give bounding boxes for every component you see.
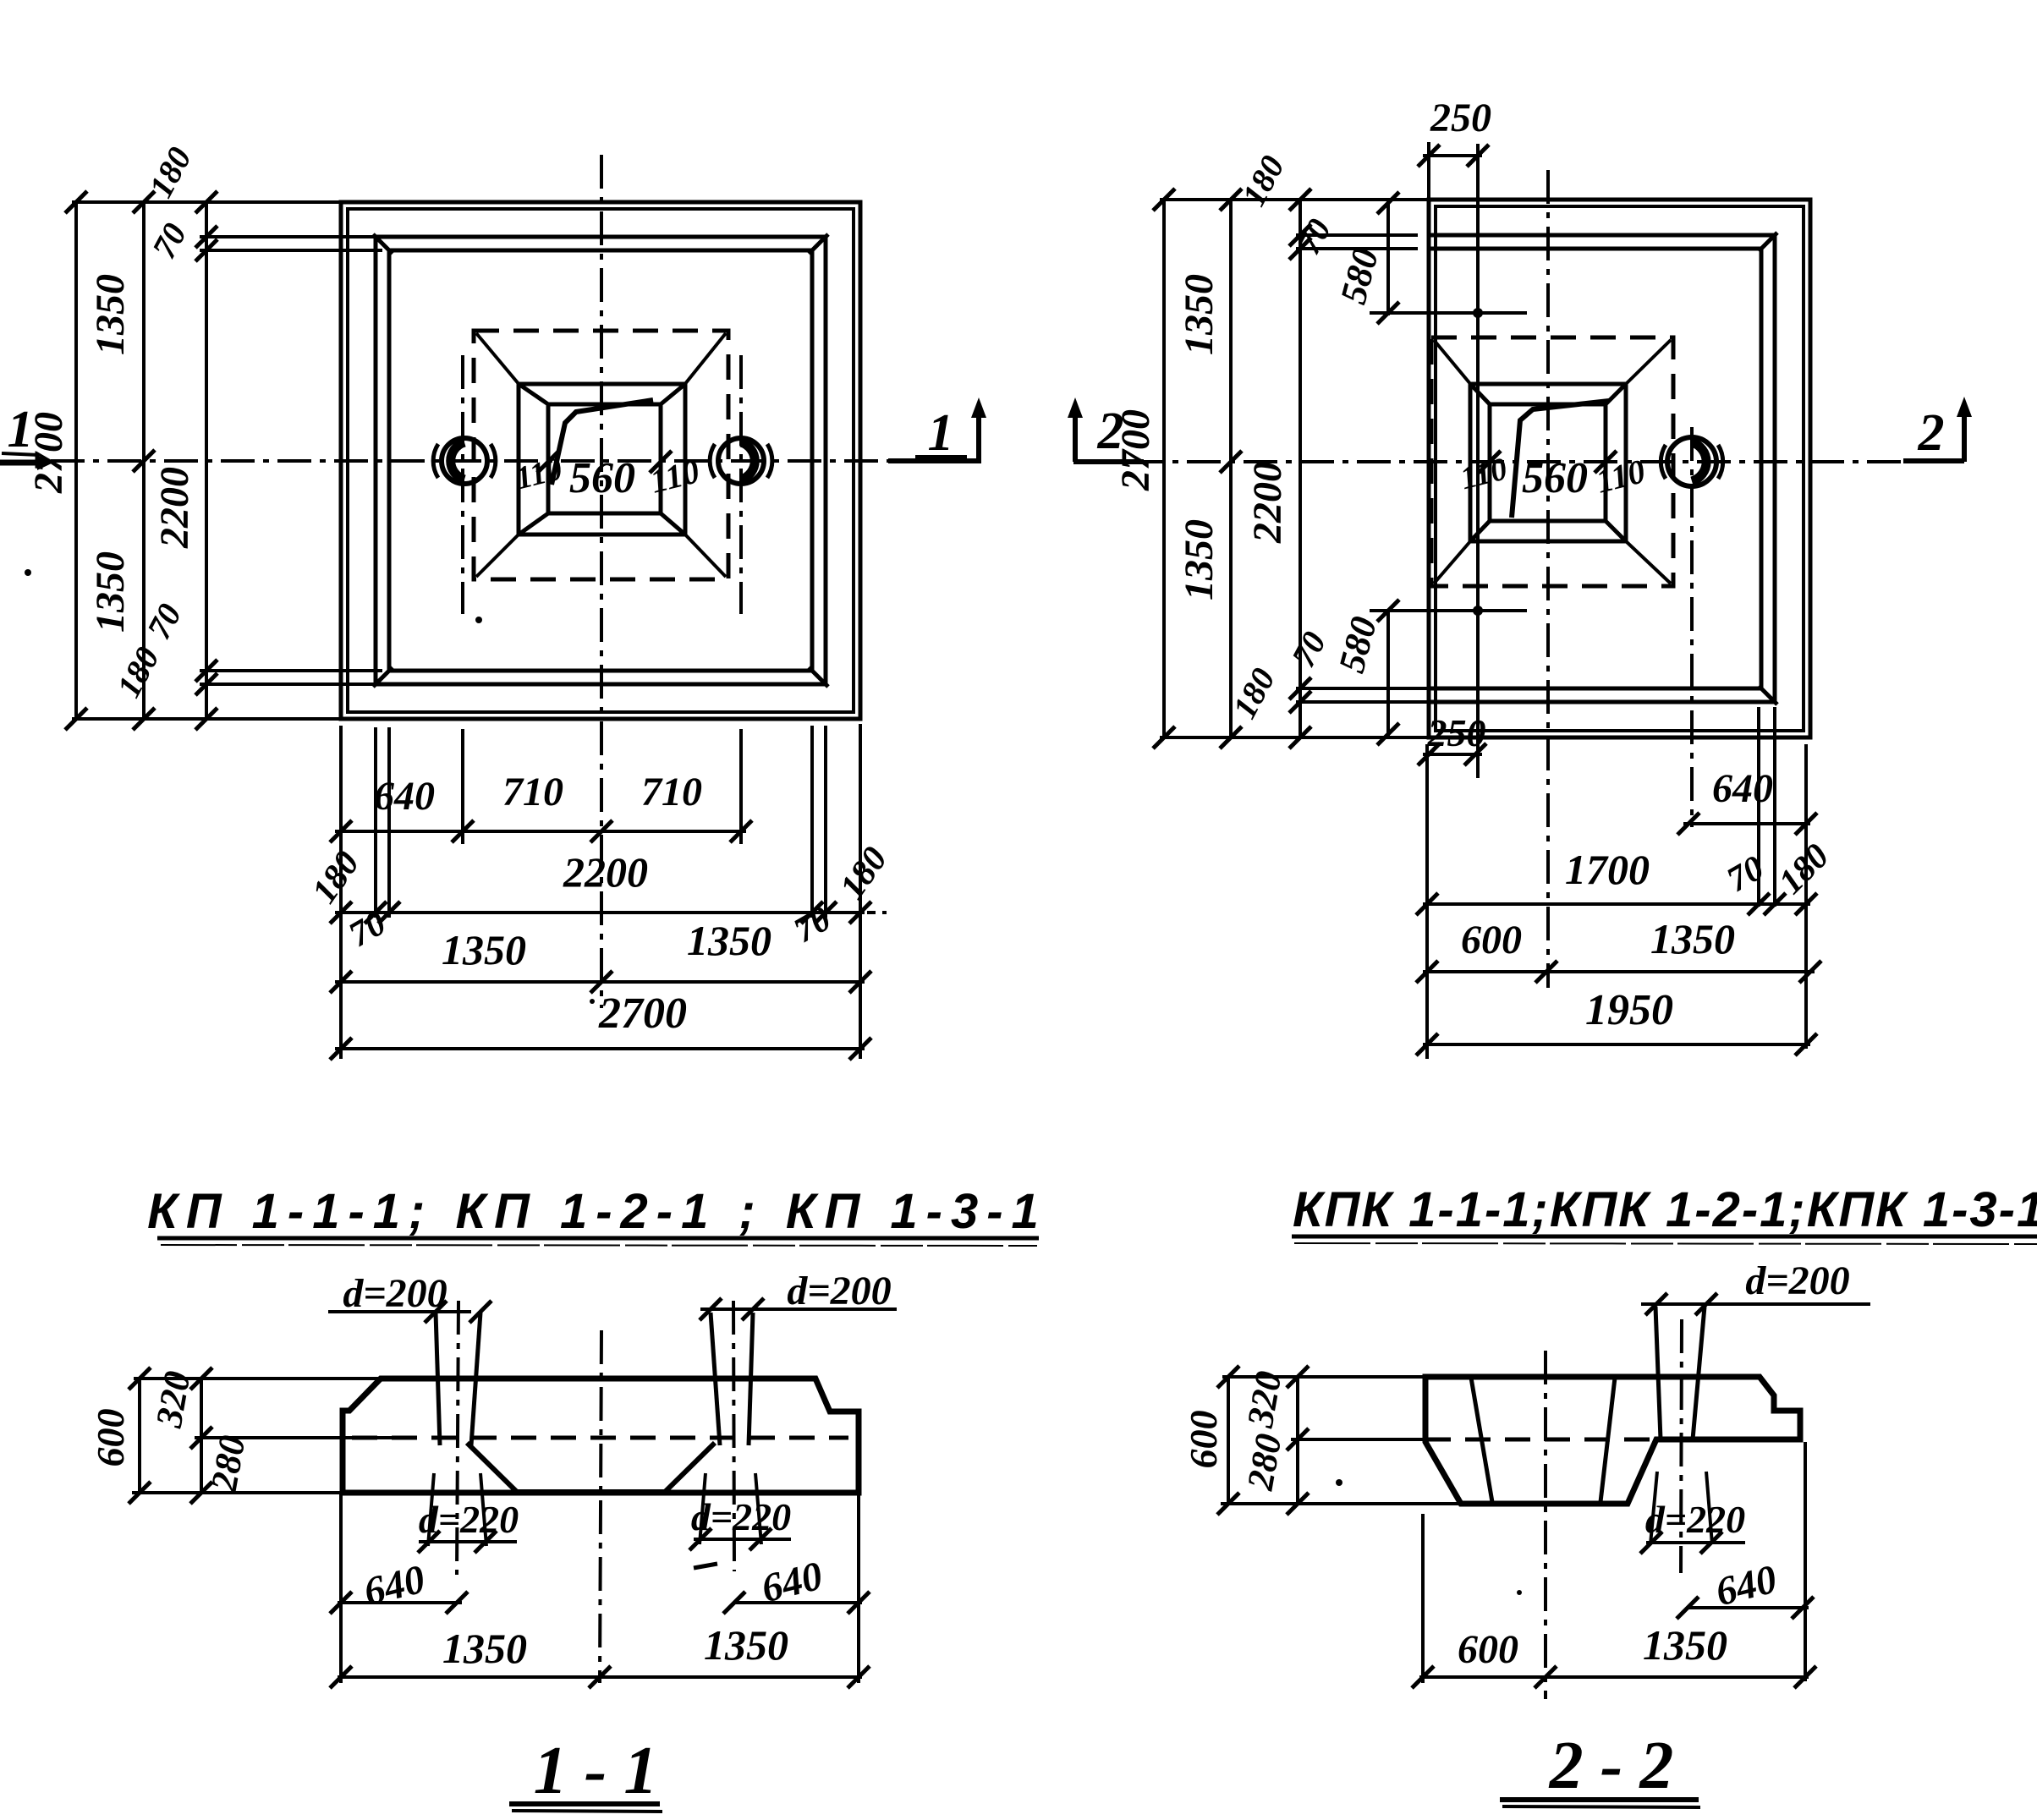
svg-text:600: 600: [1458, 1627, 1518, 1672]
svg-text:2200: 2200: [563, 848, 648, 896]
svg-text:2: 2: [1918, 404, 1945, 462]
svg-text:1350: 1350: [1177, 274, 1222, 355]
svg-text:1350: 1350: [88, 274, 133, 355]
svg-text:1 - 1: 1 - 1: [534, 1734, 658, 1808]
svg-text:1350: 1350: [1177, 519, 1222, 600]
svg-text:2700: 2700: [1113, 409, 1158, 491]
svg-text:2200: 2200: [152, 467, 197, 549]
svg-text:1: 1: [928, 404, 954, 462]
svg-text:1350: 1350: [687, 917, 771, 964]
svg-text:1350: 1350: [442, 1625, 527, 1672]
svg-text:1350: 1350: [442, 926, 526, 973]
svg-text:640: 640: [1712, 766, 1773, 811]
svg-text:560: 560: [1522, 454, 1588, 502]
svg-text:250: 250: [1430, 96, 1491, 140]
svg-text:КП 1-1-1; КП 1-2-1 ; КП 1-3-1: КП 1-1-1; КП 1-2-1 ; КП 1-3-1: [147, 1184, 1047, 1239]
svg-text:2 - 2: 2 - 2: [1549, 1729, 1674, 1803]
svg-text:710: 710: [502, 770, 563, 814]
svg-text:КПК 1-1-1;КПК 1-2-1;КПК 1-3-1: КПК 1-1-1;КПК 1-2-1;КПК 1-3-1: [1293, 1182, 2037, 1237]
svg-text:d=200: d=200: [343, 1271, 447, 1316]
svg-text:640: 640: [374, 774, 435, 819]
svg-text:710: 710: [641, 770, 702, 814]
svg-text:2200: 2200: [1245, 462, 1290, 544]
svg-text:600: 600: [1182, 1411, 1225, 1469]
svg-text:2700: 2700: [598, 989, 687, 1038]
svg-text:560: 560: [569, 454, 635, 502]
svg-text:d=200: d=200: [1745, 1258, 1849, 1303]
svg-text:1350: 1350: [88, 551, 133, 633]
svg-text:1950: 1950: [1585, 986, 1673, 1034]
svg-text:600: 600: [89, 1409, 132, 1467]
svg-text:1350: 1350: [1650, 915, 1735, 962]
svg-text:2700: 2700: [26, 412, 71, 494]
svg-text:250: 250: [1427, 711, 1486, 754]
svg-text:1350: 1350: [704, 1621, 788, 1669]
svg-text:1350: 1350: [1643, 1621, 1727, 1669]
svg-text:600: 600: [1461, 918, 1522, 962]
svg-text:d=200: d=200: [787, 1269, 891, 1313]
svg-text:1700: 1700: [1565, 846, 1650, 893]
